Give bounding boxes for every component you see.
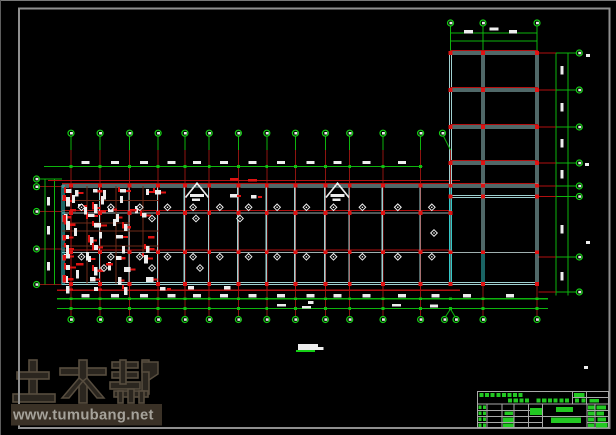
svg-text:www.tumubang.net: www.tumubang.net [12, 408, 154, 424]
